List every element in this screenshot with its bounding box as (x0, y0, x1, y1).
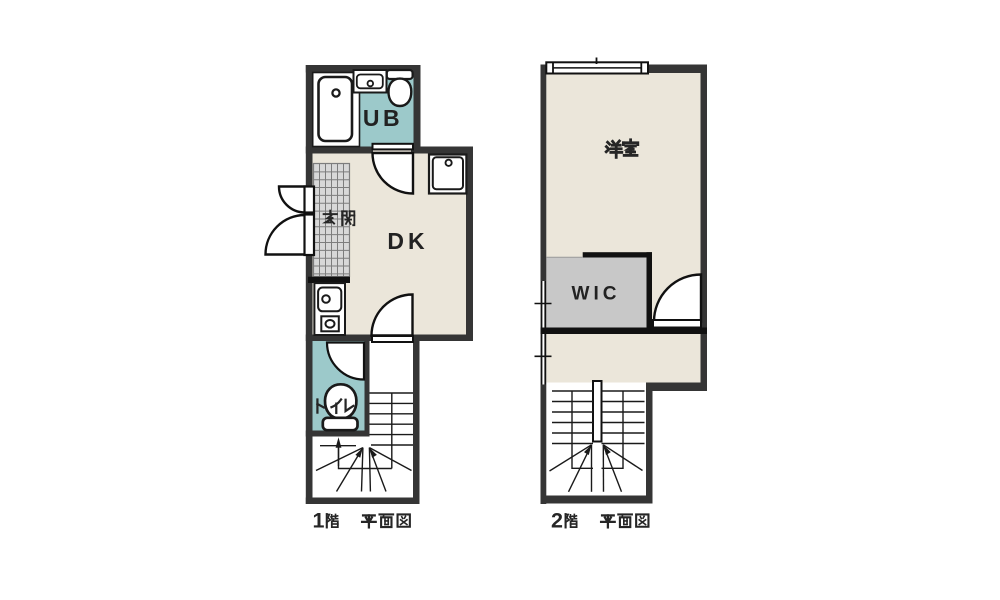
svg-text:UB: UB (363, 105, 403, 131)
svg-text:DK: DK (387, 228, 428, 254)
svg-text:WIC: WIC (572, 284, 621, 305)
svg-text:1: 1 (313, 509, 325, 533)
svg-text:2: 2 (551, 509, 563, 533)
